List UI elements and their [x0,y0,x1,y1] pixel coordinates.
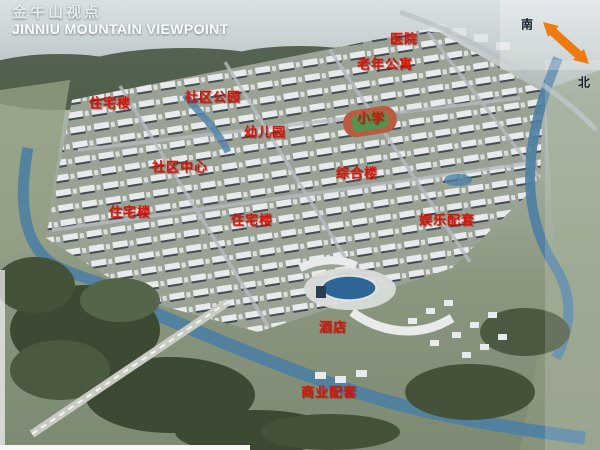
label-primary-school: 小学 [357,108,385,127]
label-residential-building-1: 住宅楼 [89,93,131,112]
label-senior-apartments: 老年公寓 [357,54,413,73]
label-commercial-facilities: 商业配套 [301,382,357,401]
viewpoint-title: 金牛山视点 JINNIU MOUNTAIN VIEWPOINT [12,4,229,37]
label-residential-building-2: 住宅楼 [109,202,151,221]
compass-south-label: 南 [521,16,533,33]
label-entertainment-facilities: 娱乐配套 [419,210,475,229]
masterplan-screenshot: 金牛山视点 JINNIU MOUNTAIN VIEWPOINT 南 北 医院 老… [0,0,600,450]
label-community-park: 社区公园 [185,87,241,106]
compass-north-label: 北 [578,74,590,91]
label-residential-building-3: 住宅楼 [231,210,273,229]
title-english: JINNIU MOUNTAIN VIEWPOINT [12,21,229,37]
label-hotel: 酒店 [319,317,347,336]
edge-haze [545,60,600,450]
photo-border-left [0,270,5,450]
photo-border-bottom [0,445,250,450]
small-pond [444,174,472,186]
label-mixed-use-building: 综合楼 [336,163,378,182]
label-kindergarten: 幼儿园 [244,122,286,141]
label-hospital: 医院 [390,29,418,48]
label-community-center: 社区中心 [152,157,208,176]
title-chinese: 金牛山视点 [12,4,229,21]
